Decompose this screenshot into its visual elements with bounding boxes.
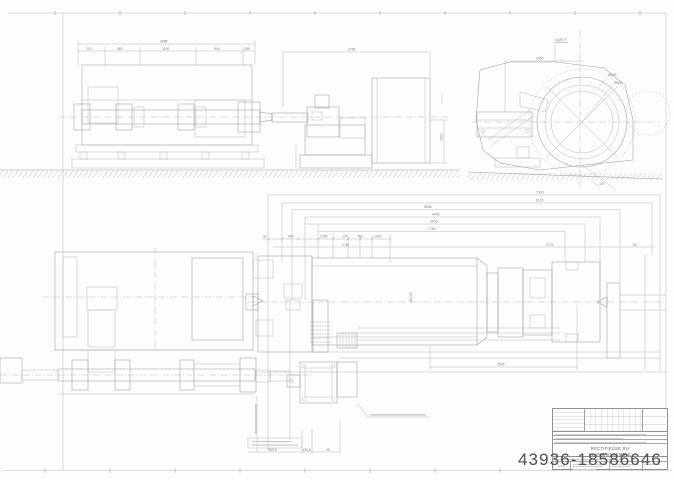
ground-hatching-right: [468, 172, 662, 180]
svg-text:5935: 5935: [424, 205, 432, 209]
revision-right-cells: [643, 409, 669, 431]
machine-column: [372, 78, 430, 163]
svg-text:2546: 2546: [497, 363, 505, 367]
journal-and-tailstock: [487, 250, 666, 372]
listing-watermark-number: 43936-18586646: [518, 450, 662, 470]
view-label: VUE F: [555, 37, 567, 42]
bolted-column: [310, 300, 331, 352]
wheel-housing-outline: [476, 62, 633, 170]
dim-label: 560: [117, 47, 123, 51]
svg-text:147: 147: [342, 235, 348, 239]
svg-text:1014: 1014: [374, 235, 382, 239]
svg-text:944: 944: [288, 235, 294, 239]
svg-text:7300: 7300: [536, 191, 544, 195]
svg-text:42: 42: [263, 235, 267, 239]
svg-text:2761: 2761: [342, 243, 350, 247]
dressing-mechanism: [477, 92, 548, 167]
leader-note: [357, 403, 430, 417]
wheelhead-column-plan: [246, 256, 312, 352]
dim-label: 2785: [348, 48, 356, 52]
svg-text:1753: 1753: [428, 227, 436, 231]
ground-hatching-left: [0, 170, 460, 178]
svg-text:4445: 4445: [432, 213, 440, 217]
drawing-sheet: 3085 212 560 1100 944 269 2785 1500: [0, 0, 674, 480]
vertical-note-and-dims: 900.5 134.5 40: [248, 396, 340, 454]
roll-cylinder: Ø1030: [312, 258, 487, 345]
main-plan-view: Ø1030 254: [246, 250, 666, 372]
svg-text:134.5: 134.5: [303, 448, 312, 452]
end-view: VUE F Ø650 Ø500 1850: [468, 30, 670, 190]
gear-housing: [287, 300, 357, 440]
svg-text:2935: 2935: [430, 220, 438, 224]
top-left-dimensions: 3085 212 560 1100 944 269 2785 1500: [78, 40, 448, 164]
end-view-dim-labels: Ø650 Ø500 1850: [505, 44, 622, 112]
dim-label: 3085: [160, 40, 168, 44]
roll-shaft-assembly: [58, 102, 448, 132]
headstock-body: [72, 65, 264, 168]
svg-text:Ø650: Ø650: [608, 73, 616, 77]
roll-diameter-label: Ø1030: [409, 292, 413, 302]
top-left-elevation-view: 3085 212 560 1100 944 269 2785 1500: [0, 40, 460, 178]
dim-label: 212: [86, 47, 92, 51]
side-attachments: [253, 260, 273, 336]
dim-label-vertical: 1500: [440, 133, 444, 141]
svg-text:1850: 1850: [536, 57, 544, 61]
revision-table: [553, 409, 667, 432]
svg-text:900.5: 900.5: [268, 448, 277, 452]
revision-index-cells: [553, 409, 585, 431]
svg-text:40: 40: [326, 448, 330, 452]
revision-grid-cells: [585, 409, 643, 431]
drive-line-shaft: [0, 358, 312, 392]
dim-label: 1100: [162, 47, 169, 51]
dim-label: 944: [214, 47, 220, 51]
gearbox-detail: 900.5 134.5 40: [248, 300, 560, 454]
svg-text:6120: 6120: [536, 199, 544, 203]
dim-label: 269: [244, 47, 250, 51]
svg-text:2741: 2741: [546, 243, 554, 247]
svg-text:1035: 1035: [320, 235, 328, 239]
wheelhead-unit: [296, 95, 372, 168]
svg-text:25°: 25°: [600, 182, 606, 186]
svg-text:84: 84: [633, 243, 637, 247]
roll-length-dimension: 2546: [430, 305, 577, 370]
border-ticks: [45, 11, 640, 473]
